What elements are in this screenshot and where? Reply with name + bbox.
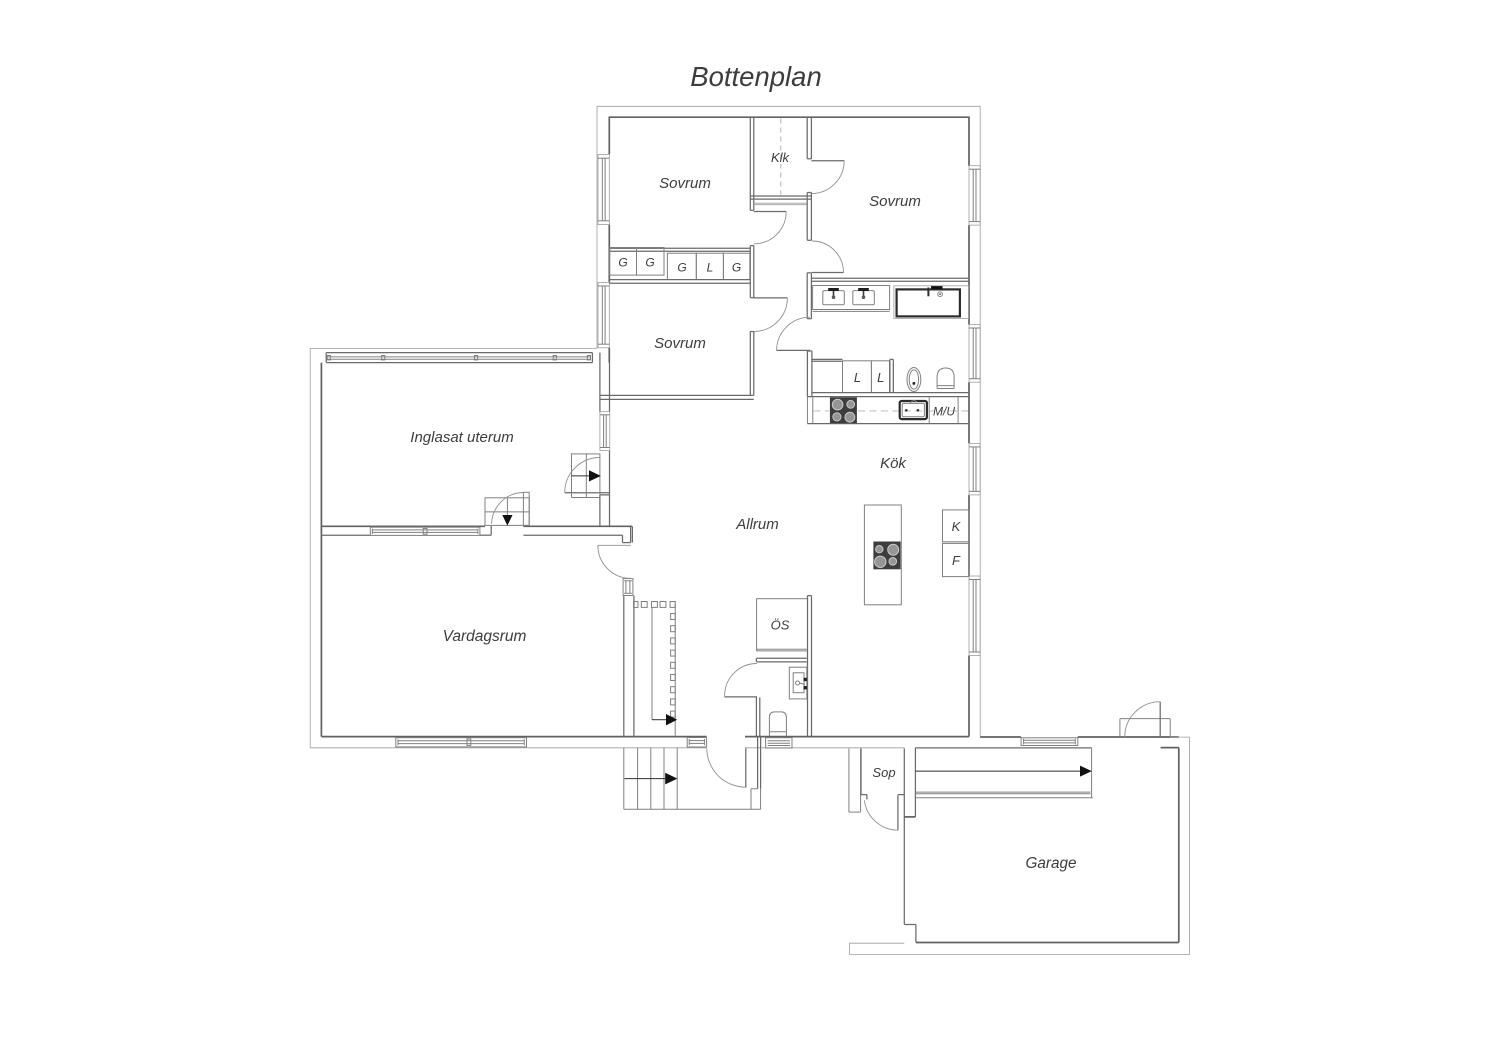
svg-text:Sop: Sop — [872, 765, 895, 780]
svg-text:Sovrum: Sovrum — [869, 193, 921, 210]
svg-text:Sovrum: Sovrum — [659, 175, 711, 192]
svg-text:Kök: Kök — [880, 455, 907, 472]
svg-text:ÖS: ÖS — [771, 618, 790, 633]
svg-text:G: G — [618, 256, 627, 270]
svg-text:G: G — [677, 261, 686, 275]
svg-text:Vardagsrum: Vardagsrum — [443, 628, 527, 645]
svg-text:Garage: Garage — [1025, 855, 1076, 872]
svg-text:L: L — [707, 261, 714, 275]
svg-text:L: L — [854, 370, 861, 385]
svg-text:M/U: M/U — [933, 405, 955, 419]
svg-text:K: K — [952, 519, 962, 534]
svg-text:Bottenplan: Bottenplan — [690, 61, 822, 92]
svg-text:F: F — [952, 553, 961, 568]
svg-text:Inglasat uterum: Inglasat uterum — [410, 429, 513, 446]
svg-text:Klk: Klk — [771, 150, 791, 165]
svg-text:G: G — [645, 256, 654, 270]
svg-text:L: L — [877, 370, 884, 385]
svg-text:Allrum: Allrum — [735, 516, 779, 533]
svg-text:G: G — [732, 261, 741, 275]
svg-text:Sovrum: Sovrum — [654, 335, 706, 352]
